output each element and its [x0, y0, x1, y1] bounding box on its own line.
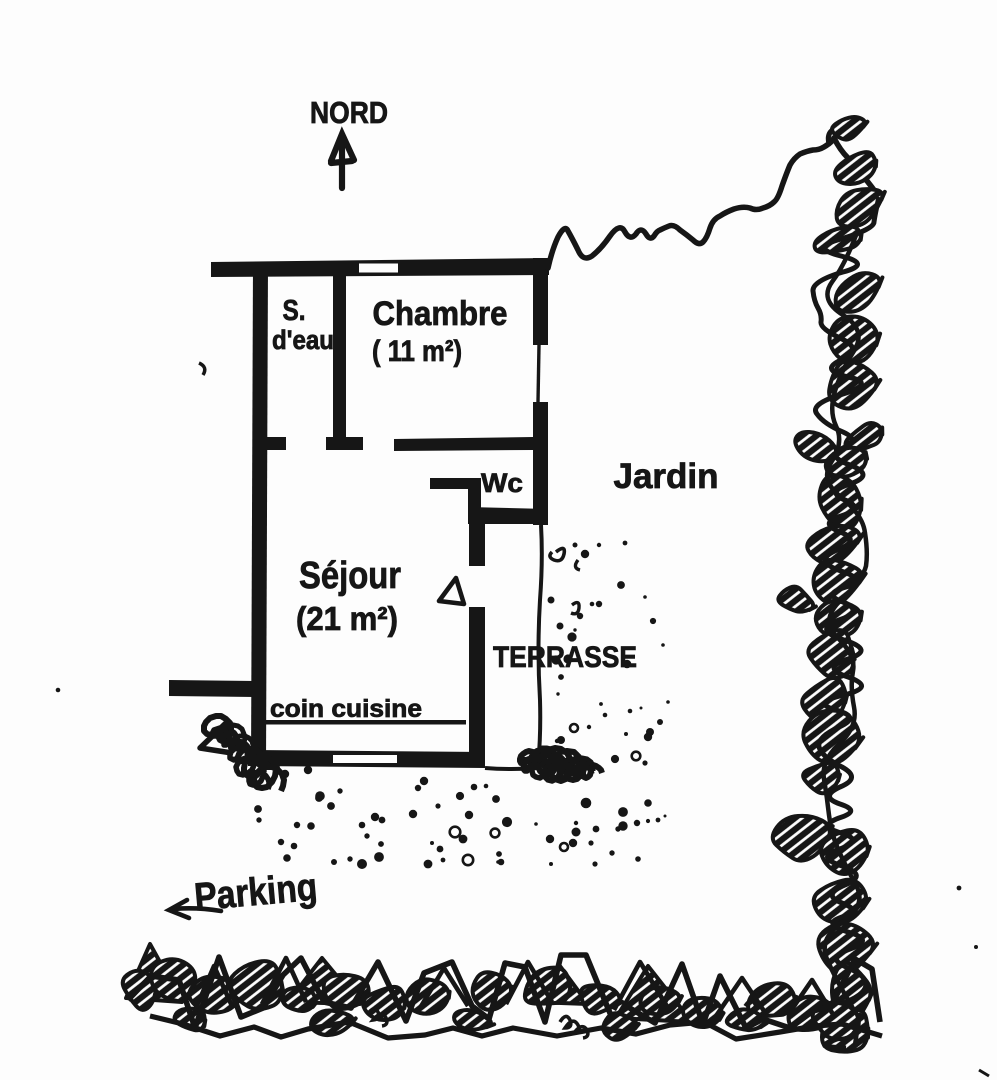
svg-text:Wc: Wc	[481, 468, 523, 498]
svg-text:d'eau: d'eau	[272, 325, 334, 355]
svg-text:S.: S.	[283, 295, 306, 327]
svg-text:(21 m²): (21 m²)	[296, 600, 398, 637]
svg-text:NORD: NORD	[310, 95, 388, 130]
svg-text:Chambre: Chambre	[373, 295, 508, 333]
svg-text:( 11 m²): ( 11 m²)	[372, 335, 462, 368]
svg-text:coin cuisine: coin cuisine	[270, 695, 422, 723]
svg-text:Jardin: Jardin	[614, 457, 719, 496]
svg-text:Séjour: Séjour	[299, 555, 401, 597]
